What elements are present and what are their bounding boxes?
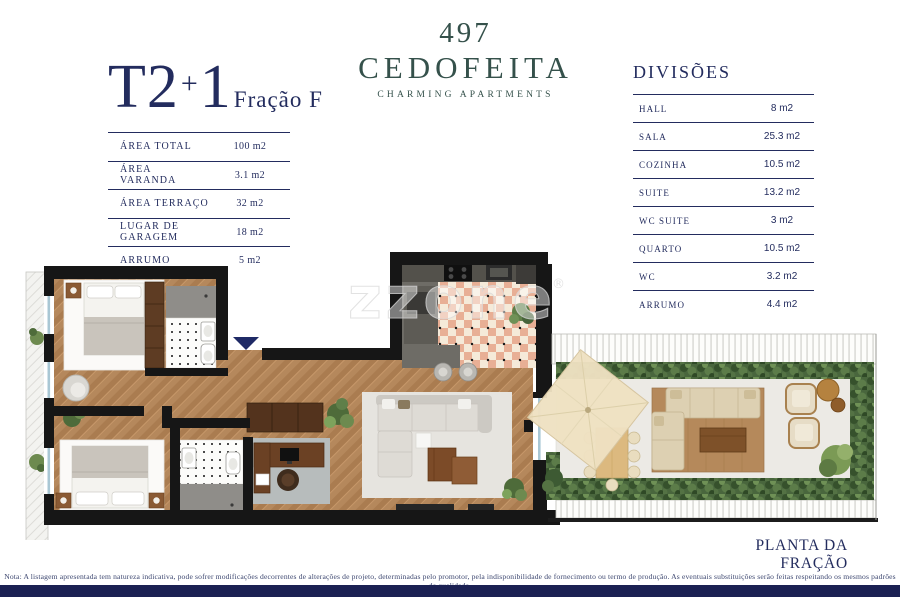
division-label: SUITE (633, 188, 750, 198)
table-row: ÁREA TERRAÇO 32 m2 (108, 189, 290, 218)
area-value: 100 m2 (210, 141, 290, 152)
suite-wardrobe (145, 282, 164, 368)
brand-logo: 497 CEDOFEITA CHARMING APARTMENTS (348, 18, 583, 100)
watermark-text: zzone (348, 264, 556, 332)
shower (166, 286, 216, 318)
area-label: ÁREA TERRAÇO (108, 198, 210, 209)
terrace-railing-bottom (556, 500, 876, 518)
table-row: WC SUITE 3 m2 (633, 206, 814, 234)
area-label: ÁREA VARANDA (108, 164, 210, 186)
table-row: ÁREA VARANDA 3.1 m2 (108, 161, 290, 190)
division-label: COZINHA (633, 160, 750, 170)
unit-type: T2 (108, 56, 179, 118)
division-label: WC SUITE (633, 216, 750, 226)
wc (180, 440, 243, 515)
division-value: 8 m2 (750, 103, 814, 114)
watermark-registered-icon: ® (552, 277, 565, 292)
area-label: ÁREA TOTAL (108, 141, 210, 152)
area-value: 32 m2 (210, 198, 290, 209)
floor-plan: zzone ® (0, 248, 900, 540)
division-value: 13.2 m2 (750, 187, 814, 198)
footer-bar (0, 585, 900, 597)
outdoor-coffee-table (700, 428, 746, 452)
monitor-icon (280, 448, 299, 461)
table-row: SUITE 13.2 m2 (633, 178, 814, 206)
table-row: COZINHA 10.5 m2 (633, 150, 814, 178)
brochure-page: T2 + 1 Fração F ÁREA TOTAL 100 m2 ÁREA V… (0, 0, 900, 597)
wc-suite (166, 286, 216, 368)
division-label: HALL (633, 104, 750, 114)
side-table (817, 379, 839, 401)
division-value: 3 m2 (750, 215, 814, 226)
sideboard (247, 403, 323, 432)
division-label: SALA (633, 132, 750, 142)
terrace (528, 334, 878, 522)
plan-caption: PLANTA DA FRAÇÃO (690, 537, 848, 573)
table-row: SALA 25.3 m2 (633, 122, 814, 150)
area-label: LUGAR DE GARAGEM (108, 221, 210, 243)
unit-plus-count: 1 (200, 56, 232, 118)
logo-number: 497 (348, 18, 583, 50)
unit-fraction: Fração F (234, 88, 323, 111)
unit-title: T2 + 1 Fração F (108, 56, 290, 124)
unit-info-block: T2 + 1 Fração F ÁREA TOTAL 100 m2 ÁREA V… (108, 56, 290, 275)
logo-name: CEDOFEITA (348, 50, 583, 86)
division-value: 10.5 m2 (750, 159, 814, 170)
table-row: HALL 8 m2 (633, 94, 814, 122)
unit-plus: + (181, 69, 198, 99)
logo-tagline: CHARMING APARTMENTS (348, 90, 583, 100)
divisions-title: DIVISÕES (633, 62, 814, 94)
terrace-railing-top (552, 334, 876, 364)
second-bedroom (56, 440, 164, 510)
entrance-arrow (233, 337, 259, 350)
division-value: 25.3 m2 (750, 131, 814, 142)
office-nook (247, 403, 330, 504)
watermark: zzone ® (348, 264, 565, 332)
area-value: 18 m2 (210, 227, 290, 238)
area-value: 3.1 m2 (210, 170, 290, 181)
table-row: LUGAR DE GARAGEM 18 m2 (108, 218, 290, 247)
table-row: ÁREA TOTAL 100 m2 (108, 132, 290, 161)
